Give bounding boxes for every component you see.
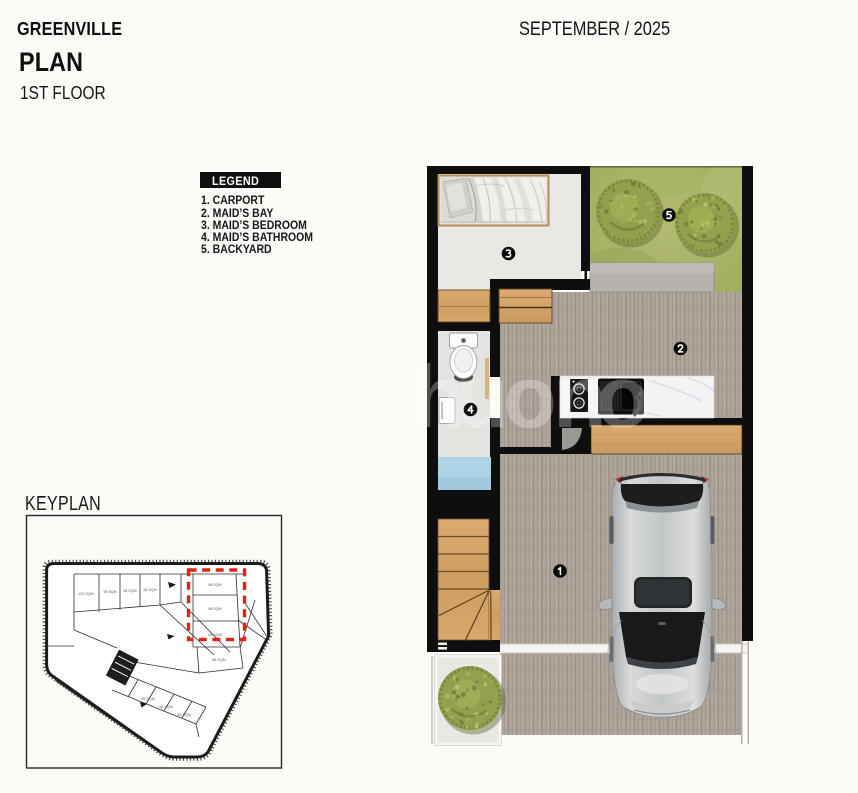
svg-text:88 SQM: 88 SQM (208, 607, 221, 611)
svg-text:u: u (455, 347, 509, 446)
svg-text:88 SQM: 88 SQM (208, 583, 221, 587)
svg-text:88 SQM: 88 SQM (212, 658, 225, 662)
svg-text:98 SQM: 98 SQM (103, 590, 116, 594)
svg-text:96 SQM: 96 SQM (177, 713, 190, 717)
svg-text:102 SQM: 102 SQM (78, 592, 93, 596)
svg-text:88 SQM: 88 SQM (208, 633, 221, 637)
svg-text:98 SQM: 98 SQM (143, 588, 156, 592)
svg-text:96 SQM: 96 SQM (159, 705, 172, 709)
svg-text:o: o (596, 347, 650, 446)
svg-text:98 SQM: 98 SQM (123, 589, 136, 593)
svg-text:o: o (503, 347, 557, 446)
svg-text:96 SQM: 96 SQM (141, 697, 154, 701)
